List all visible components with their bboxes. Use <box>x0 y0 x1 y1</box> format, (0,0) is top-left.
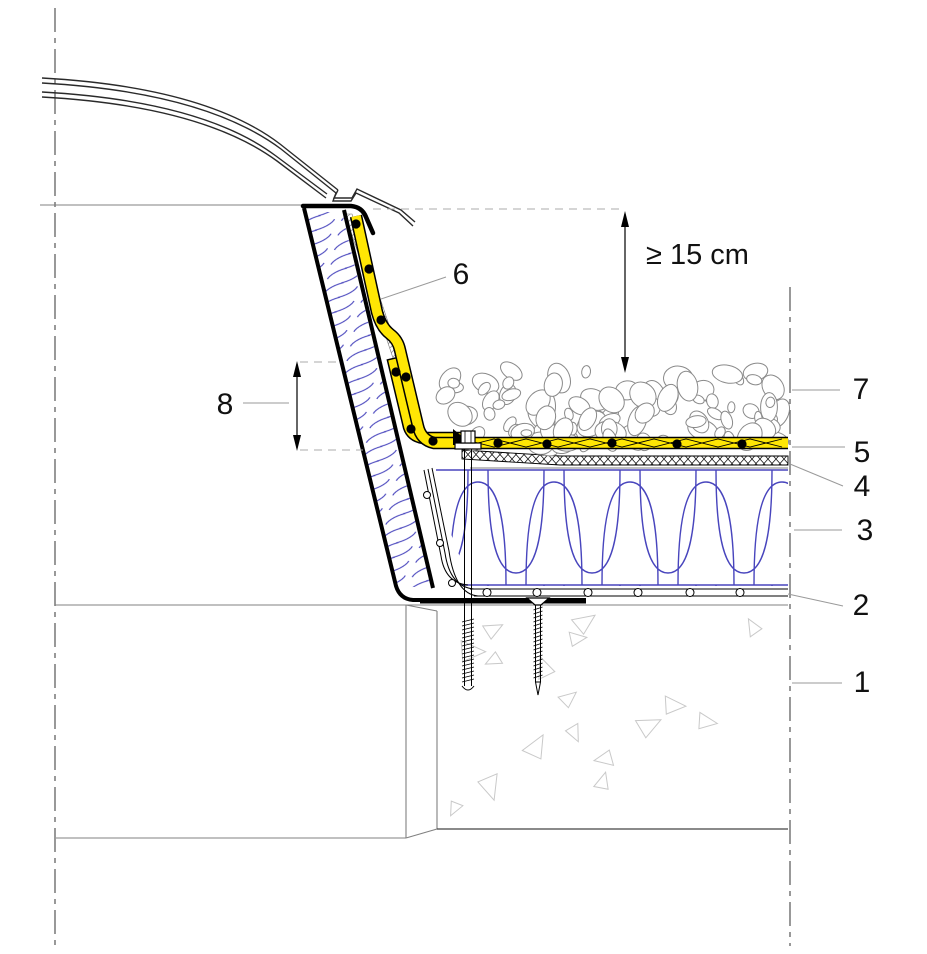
fixing-circle <box>634 589 642 597</box>
aggregate-triangle <box>558 692 576 708</box>
callout-2: 2 <box>853 589 870 622</box>
thread-line <box>534 671 543 674</box>
thread-line <box>534 663 543 666</box>
thread-line <box>462 627 474 630</box>
thread-line <box>534 607 543 610</box>
insulation-layer <box>436 470 790 586</box>
thread-line <box>462 639 474 642</box>
aggregate-triangle <box>636 720 661 738</box>
weld-dot <box>364 264 373 273</box>
gravel-stone <box>521 430 532 437</box>
thread-line <box>534 675 543 678</box>
weld-dot <box>351 219 360 228</box>
thread-line <box>462 631 474 634</box>
aggregate-triangle <box>748 619 762 637</box>
thread-line <box>534 611 543 614</box>
aggregate-triangle <box>485 652 502 664</box>
aggregate-triangle <box>522 735 543 759</box>
aggregate-triangle <box>594 772 608 789</box>
thread-line <box>462 679 474 682</box>
dome-skylight <box>42 78 415 226</box>
thread-line <box>462 635 474 638</box>
thread-line <box>534 667 543 670</box>
weld-dot <box>737 439 746 448</box>
fixing-circle <box>449 580 456 587</box>
weld-dot <box>406 424 415 433</box>
thread-line <box>534 631 543 634</box>
thread-line <box>534 615 543 618</box>
callout-3: 3 <box>857 514 874 547</box>
fixing-circle <box>736 589 744 597</box>
fixing-circle <box>437 540 444 547</box>
separation-layer <box>462 450 788 468</box>
aggregate-triangle <box>483 625 503 639</box>
aggregate-triangle <box>569 632 587 646</box>
aggregate-triangle <box>572 615 595 634</box>
arrow-down-icon <box>621 357 629 373</box>
thread-line <box>534 639 543 642</box>
weld-dot <box>542 439 551 448</box>
callout-1: 1 <box>854 666 871 699</box>
flange-fastener-screw <box>527 598 549 695</box>
weld-dot <box>391 367 400 376</box>
aggregate-triangle <box>566 724 579 742</box>
dimension-note: ≥ 15 cm <box>646 239 749 271</box>
gravel-stone <box>447 378 459 389</box>
weld-dot <box>376 315 385 324</box>
callout-7: 7 <box>853 373 870 406</box>
fixing-circle <box>483 589 491 597</box>
weld-dot <box>607 438 616 447</box>
weld-dot <box>428 436 437 445</box>
aggregate-triangle <box>451 801 463 816</box>
concrete-aggregate-triangles <box>451 615 762 816</box>
thread-line <box>462 663 474 666</box>
thread-line <box>534 643 543 646</box>
callout-8: 8 <box>217 388 234 421</box>
aggregate-triangle <box>594 750 614 765</box>
weld-dot <box>493 438 502 447</box>
callout-6: 6 <box>453 258 470 291</box>
arrow-down-icon <box>293 435 301 451</box>
gravel-stone <box>581 365 591 379</box>
thread-line <box>534 659 543 662</box>
weld-dot <box>672 439 681 448</box>
aggregate-triangle <box>478 774 497 800</box>
aggregate-triangle <box>539 657 555 680</box>
thread-line <box>534 627 543 630</box>
aggregate-triangle <box>665 696 686 714</box>
dimension-min-height: ≥ 15 cm <box>373 209 749 373</box>
thread-line <box>462 651 474 654</box>
thread-line <box>462 671 474 674</box>
fixing-circle <box>584 589 592 597</box>
thread-line <box>534 623 543 626</box>
weld-dot <box>401 372 410 381</box>
thread-line <box>462 619 474 622</box>
arrow-up-icon <box>293 361 301 377</box>
thread-line <box>462 647 474 650</box>
thread-line <box>534 647 543 650</box>
callout-4: 4 <box>854 470 871 503</box>
callout-5: 5 <box>854 436 871 469</box>
thread-line <box>462 623 474 626</box>
gravel-stone <box>727 402 735 413</box>
fixing-circle <box>424 492 431 499</box>
dimension-overlap: 8 <box>217 361 363 451</box>
thread-line <box>534 619 543 622</box>
arrow-up-icon <box>621 211 629 227</box>
thread-line <box>462 667 474 670</box>
aggregate-triangle <box>699 712 718 728</box>
fixing-circle <box>533 589 541 597</box>
thread-line <box>534 635 543 638</box>
thread-line <box>462 675 474 678</box>
thread-line <box>534 651 543 654</box>
fixing-circle <box>686 589 694 597</box>
drawing-canvas: ≥ 15 cm 8 6 7 5 4 3 2 1 <box>0 0 927 954</box>
